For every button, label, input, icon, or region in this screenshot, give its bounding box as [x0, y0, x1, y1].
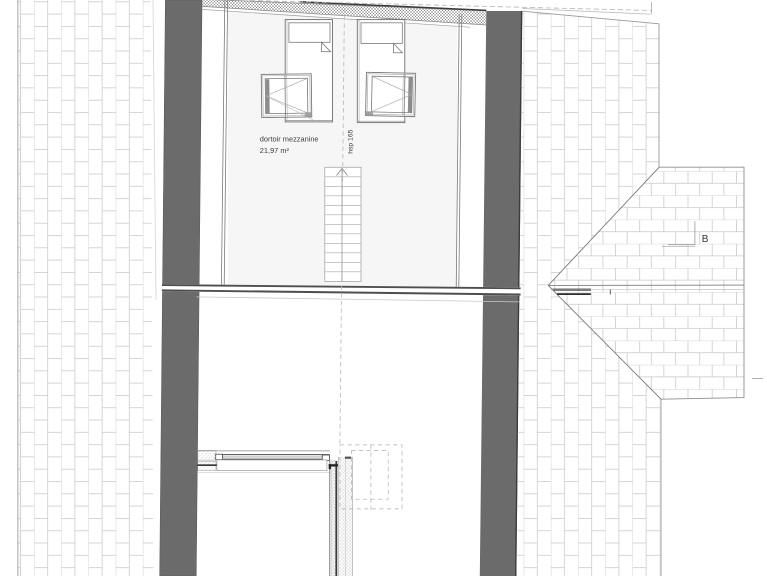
svg-text:hsp 165: hsp 165: [348, 129, 355, 153]
svg-text:B: B: [702, 234, 709, 245]
svg-text:dortoir mezzanine: dortoir mezzanine: [260, 135, 319, 144]
svg-text:21,97 m²: 21,97 m²: [260, 146, 290, 155]
